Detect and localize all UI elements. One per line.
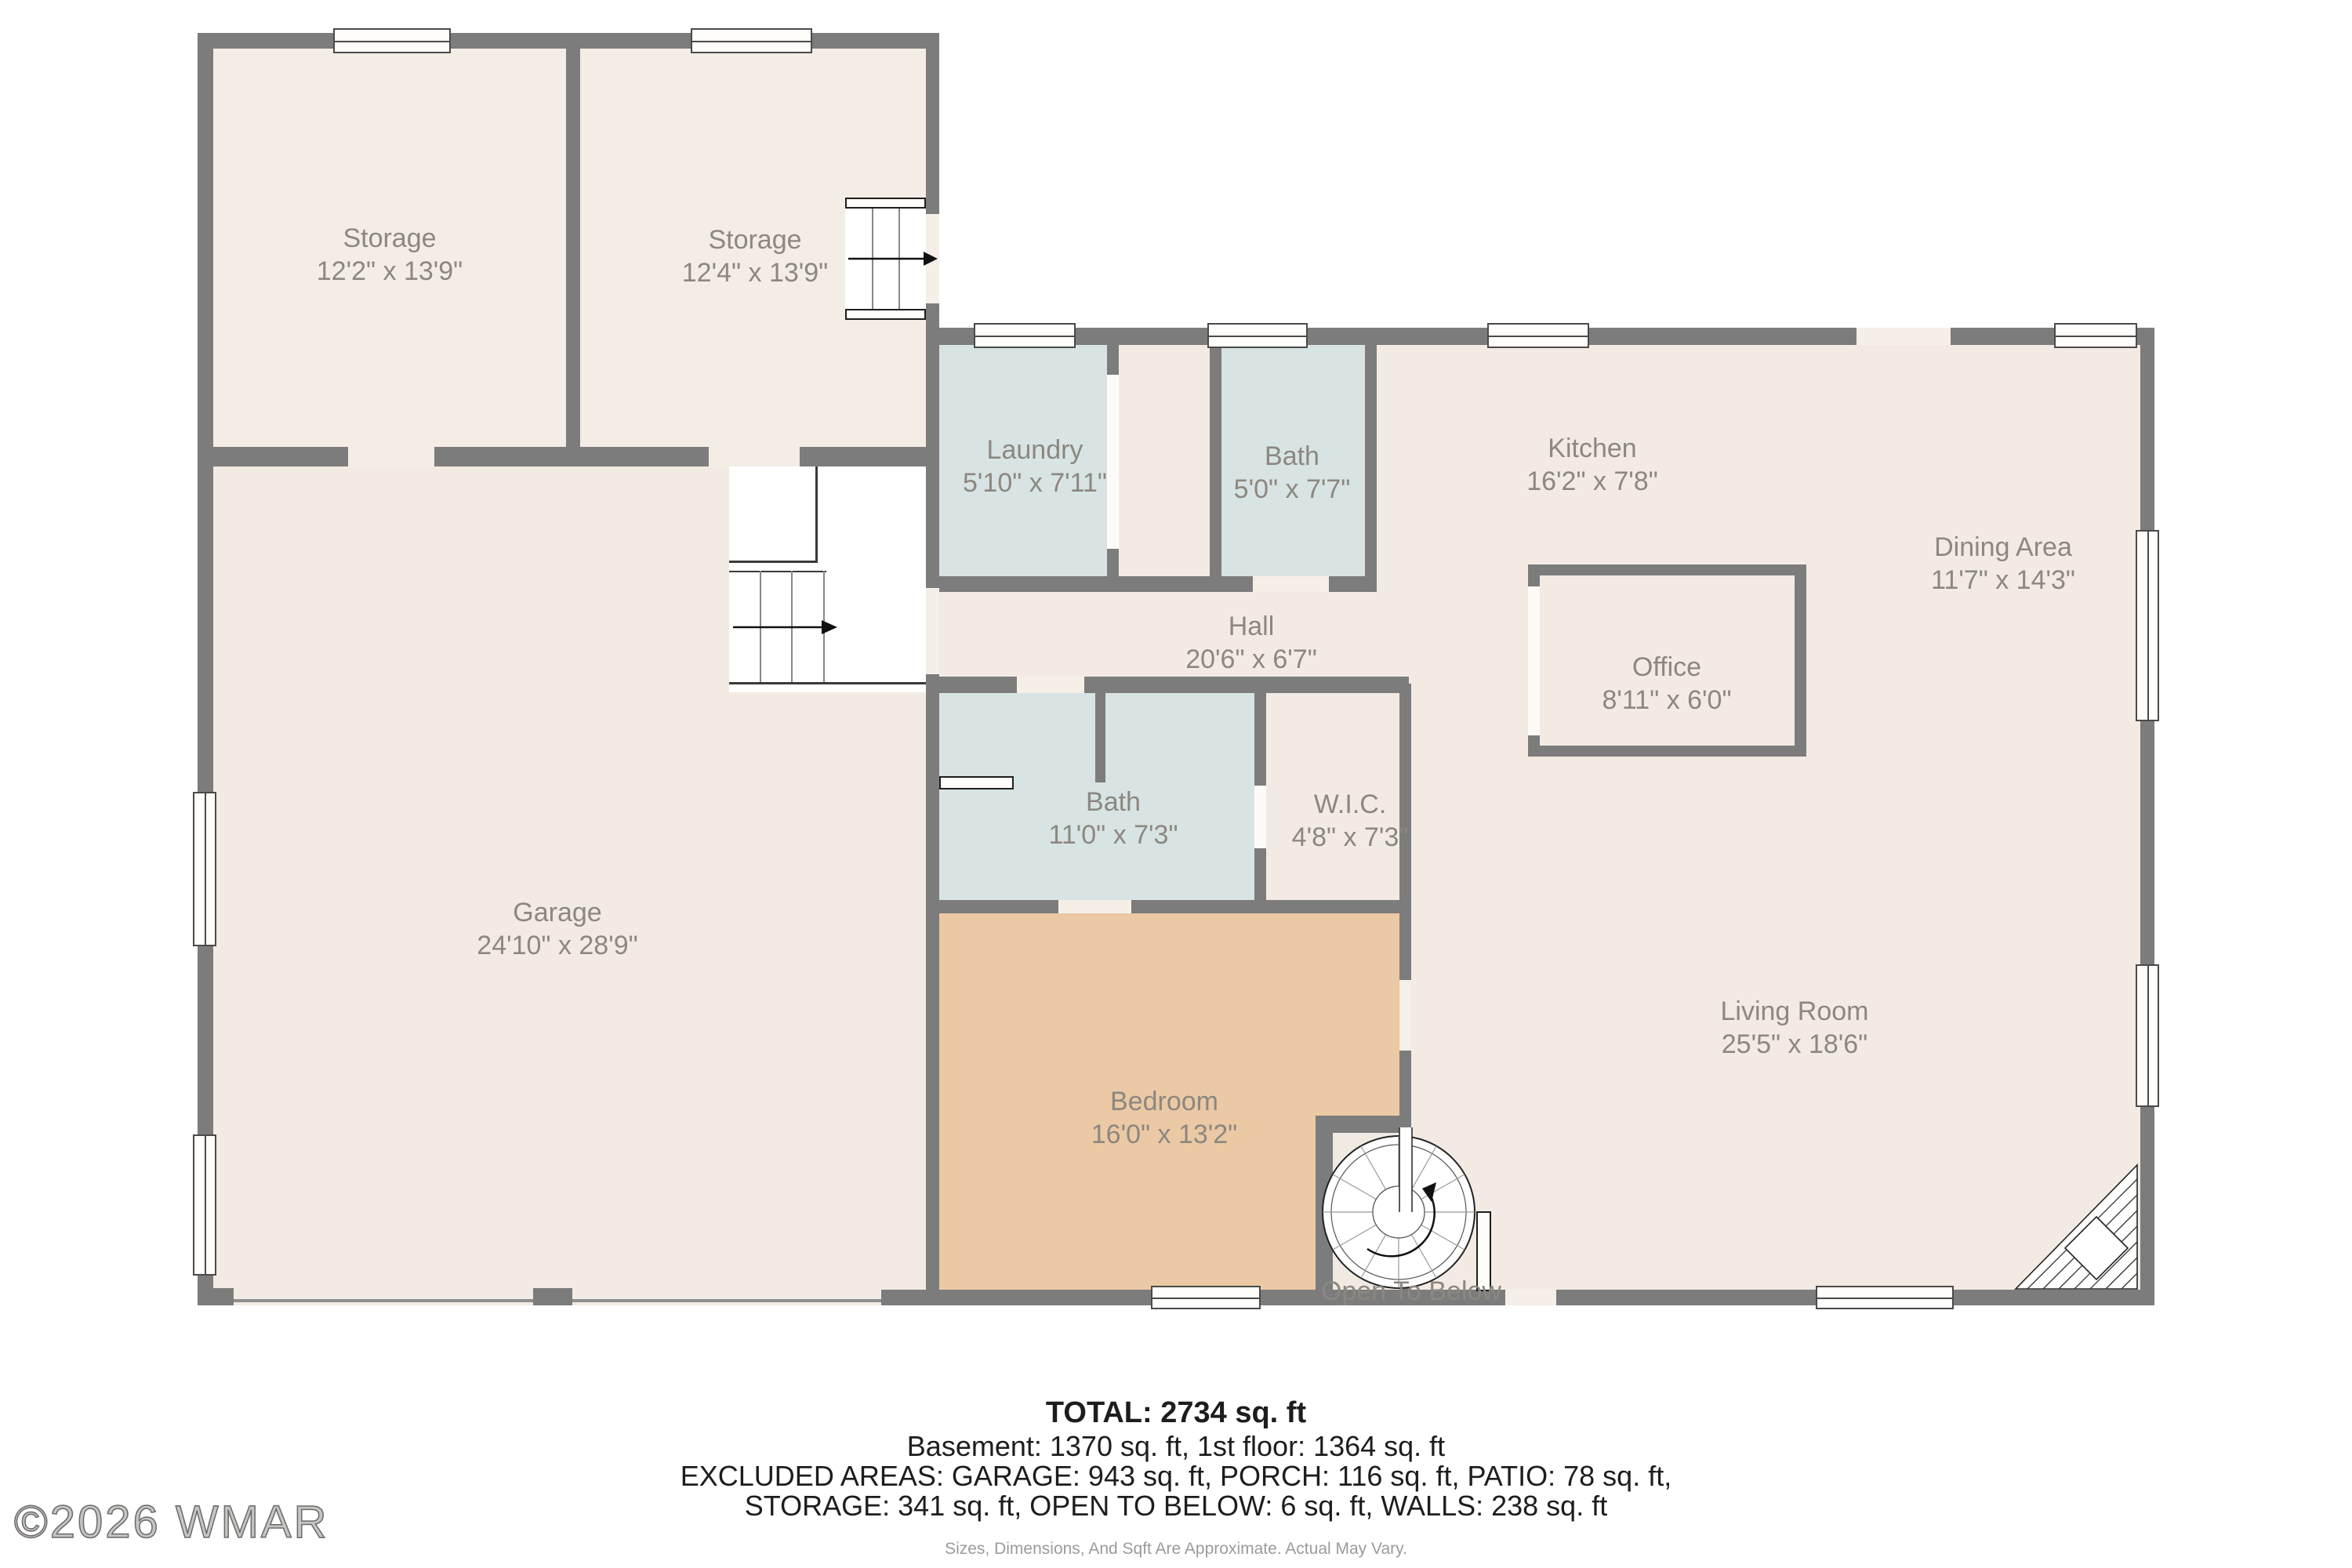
garage-door-line: [234, 1299, 533, 1302]
window: [2136, 530, 2159, 721]
towel-bar: [939, 776, 1014, 789]
room-name: Hall: [1185, 610, 1317, 643]
wall: [1528, 564, 1806, 575]
room-label-upper-bath: Bath 5'0" x 7'7": [1234, 440, 1351, 506]
wall: [1365, 345, 1377, 576]
summary-total: TOTAL: 2734 sq. ft: [0, 1396, 2352, 1430]
window: [333, 28, 451, 53]
summary-disclaimer: Sizes, Dimensions, And Sqft Are Approxim…: [0, 1540, 2352, 1559]
stair-landing-line: [815, 466, 818, 563]
room-dims: 5'10" x 7'11": [963, 466, 1107, 499]
summary-line1: Basement: 1370 sq. ft, 1st floor: 1364 s…: [0, 1430, 2352, 1463]
window: [974, 323, 1076, 348]
staircase: [729, 466, 926, 692]
wall: [566, 49, 580, 447]
stair-landing-line: [729, 561, 818, 563]
door-opening: [1253, 576, 1329, 592]
door-opening: [1528, 586, 1540, 735]
window: [691, 28, 812, 53]
room-dims: 16'0" x 13'2": [1091, 1118, 1237, 1151]
door-opening: [926, 588, 939, 674]
room-name: Storage: [317, 222, 463, 255]
room-dims: 4'8" x 7'3": [1292, 821, 1409, 854]
wall: [198, 447, 348, 466]
room-dims: 12'4" x 13'9": [682, 256, 828, 289]
room-dims: 11'0" x 7'3": [1048, 818, 1178, 851]
stair-direction-arrow-icon: [847, 249, 939, 269]
floor-plan-canvas: Storage 12'2" x 13'9" Storage 12'4" x 13…: [0, 0, 2352, 1568]
entry-door-opening: [1857, 328, 1951, 345]
room-dims: 5'0" x 7'7": [1234, 473, 1351, 506]
wall: [1795, 564, 1806, 757]
room-dims: 16'2" x 7'8": [1526, 465, 1658, 498]
window: [1816, 1286, 1954, 1309]
room-name: Garage: [477, 896, 637, 929]
wall: [926, 33, 939, 214]
room-label-hall: Hall 20'6" x 6'7": [1185, 610, 1317, 676]
window: [193, 1134, 216, 1276]
room-name: Kitchen: [1526, 432, 1658, 465]
door-opening: [1399, 980, 1411, 1051]
wall: [198, 1288, 234, 1305]
room-dims: 12'2" x 13'9": [317, 255, 463, 288]
room-label-garage: Garage 24'10" x 28'9": [477, 896, 637, 962]
window: [1487, 323, 1589, 348]
watermark: ©2026 WMAR: [14, 1496, 329, 1548]
wall: [533, 1288, 572, 1305]
window: [1207, 323, 1308, 348]
room-dims: 11'7" x 14'3": [1931, 564, 2075, 597]
room-dims: 25'5" x 18'6": [1721, 1028, 1869, 1061]
window: [193, 792, 216, 946]
room-dims: 20'6" x 6'7": [1185, 643, 1317, 676]
wall: [1528, 746, 1806, 757]
room-label-office: Office 8'11" x 6'0": [1602, 651, 1731, 717]
wall: [926, 677, 1409, 693]
room-dims: 8'11" x 6'0": [1602, 684, 1731, 717]
room-name: Bath: [1234, 440, 1351, 473]
room-name: Dining Area: [1931, 531, 2075, 564]
stair-landing: [845, 309, 926, 320]
wall: [434, 447, 709, 466]
room-name: W.I.C.: [1292, 788, 1409, 821]
door-opening: [1058, 900, 1131, 913]
wall: [800, 447, 939, 466]
spiral-staircase: [1312, 1127, 1501, 1294]
stair-edge-line: [729, 682, 926, 684]
room-name: Storage: [682, 223, 828, 256]
garage-door-line: [572, 1299, 881, 1302]
wall: [198, 33, 213, 1305]
window: [2054, 323, 2137, 348]
summary-line2: EXCLUDED AREAS: GARAGE: 943 sq. ft, PORC…: [0, 1460, 2352, 1493]
wall: [198, 33, 939, 49]
door-opening: [1505, 1290, 1556, 1305]
door-opening: [1254, 786, 1266, 848]
room-label-wic: W.I.C. 4'8" x 7'3": [1292, 788, 1409, 854]
stair-direction-arrow-icon: [731, 617, 840, 637]
room-name: Laundry: [963, 434, 1107, 466]
room-label-storage2: Storage 12'4" x 13'9": [682, 223, 828, 289]
stair-landing: [845, 198, 926, 209]
room-label-living: Living Room 25'5" x 18'6": [1721, 995, 1869, 1061]
door-opening: [1107, 375, 1119, 549]
wall: [2140, 345, 2154, 1305]
room-label-lower-bath: Bath 11'0" x 7'3": [1048, 786, 1178, 851]
room-label-kitchen: Kitchen 16'2" x 7'8": [1526, 432, 1658, 498]
window: [2136, 964, 2159, 1107]
room-name: Living Room: [1721, 995, 1869, 1028]
door-opening: [1017, 677, 1084, 693]
window: [1151, 1286, 1261, 1309]
room-name: Office: [1602, 651, 1731, 684]
room-name: Bedroom: [1091, 1085, 1237, 1118]
room-dims: 24'10" x 28'9": [477, 929, 637, 962]
room-label-dining: Dining Area 11'7" x 14'3": [1931, 531, 2075, 597]
shower-partition-wall: [1095, 693, 1105, 782]
stair-tread: [729, 571, 826, 572]
wall: [926, 900, 1409, 913]
summary-line3: STORAGE: 341 sq. ft, OPEN TO BELOW: 6 sq…: [0, 1490, 2352, 1523]
corner-fireplace: [2009, 1160, 2142, 1294]
room-name: Bath: [1048, 786, 1178, 818]
room-label-bedroom: Bedroom 16'0" x 13'2": [1091, 1085, 1237, 1151]
wall: [1210, 345, 1221, 576]
open-to-below-label: Open To Below: [1321, 1276, 1501, 1307]
room-label-laundry: Laundry 5'10" x 7'11": [963, 434, 1107, 499]
room-label-storage1: Storage 12'2" x 13'9": [317, 222, 463, 288]
